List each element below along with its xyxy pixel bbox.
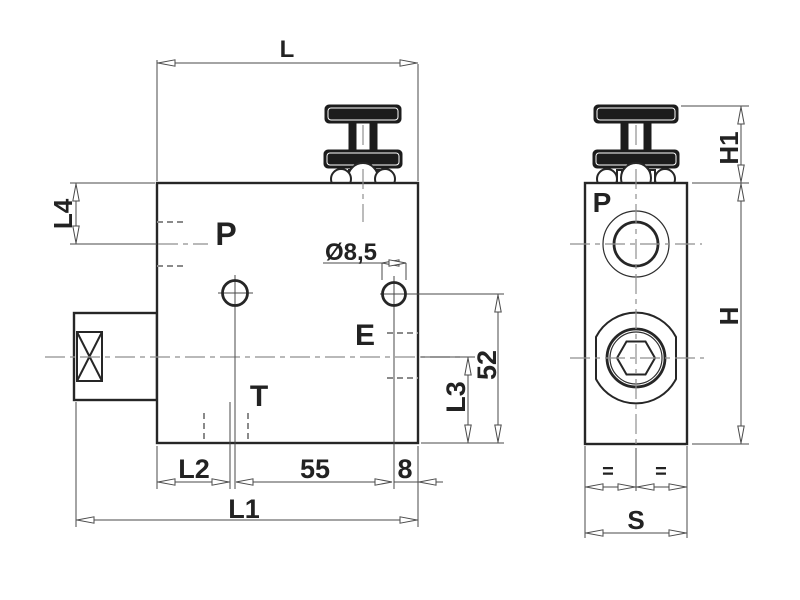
knob-post-icon [644,121,651,152]
dim-label-H: H [714,307,744,326]
dim-label-eq-left: = [602,461,614,483]
port-label-t: T [250,380,268,413]
knob-post-icon [370,121,377,152]
dim-label-55: 55 [300,454,330,484]
dim-label-S: S [627,505,644,535]
dim-label-L4: L4 [48,198,78,229]
dim-label-eq-right: = [655,461,667,483]
technical-drawing-page: L L4 L2 55 8 [0,0,800,600]
dim-label-8: 8 [397,454,412,484]
dim-label-L2: L2 [178,454,210,484]
dim-label-L1: L1 [228,494,260,524]
port-label-p-front: P [215,216,236,252]
dim-label-H1: H1 [714,131,744,164]
dim-label-52: 52 [472,350,502,380]
front-view: L L4 L2 55 8 [45,36,504,527]
knob-post-icon [621,121,628,152]
valve-body-front-outline [157,183,418,443]
port-label-p-side: P [593,187,612,218]
dim-label-L: L [280,36,295,63]
dim-label-L3: L3 [441,381,471,413]
hole-diameter-label: Ø8,5 [325,239,377,266]
side-view: H1 H = = S P [570,105,749,538]
valve-technical-drawing: L L4 L2 55 8 [0,0,800,600]
knob-post-icon [349,121,356,152]
port-label-e: E [355,319,375,352]
